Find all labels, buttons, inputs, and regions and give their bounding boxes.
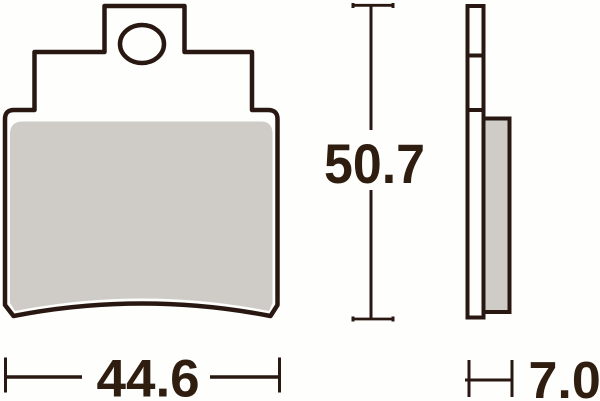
- svg-text:44.6: 44.6: [97, 350, 200, 401]
- svg-text:50.7: 50.7: [324, 133, 425, 195]
- svg-text:7.0: 7.0: [529, 352, 600, 401]
